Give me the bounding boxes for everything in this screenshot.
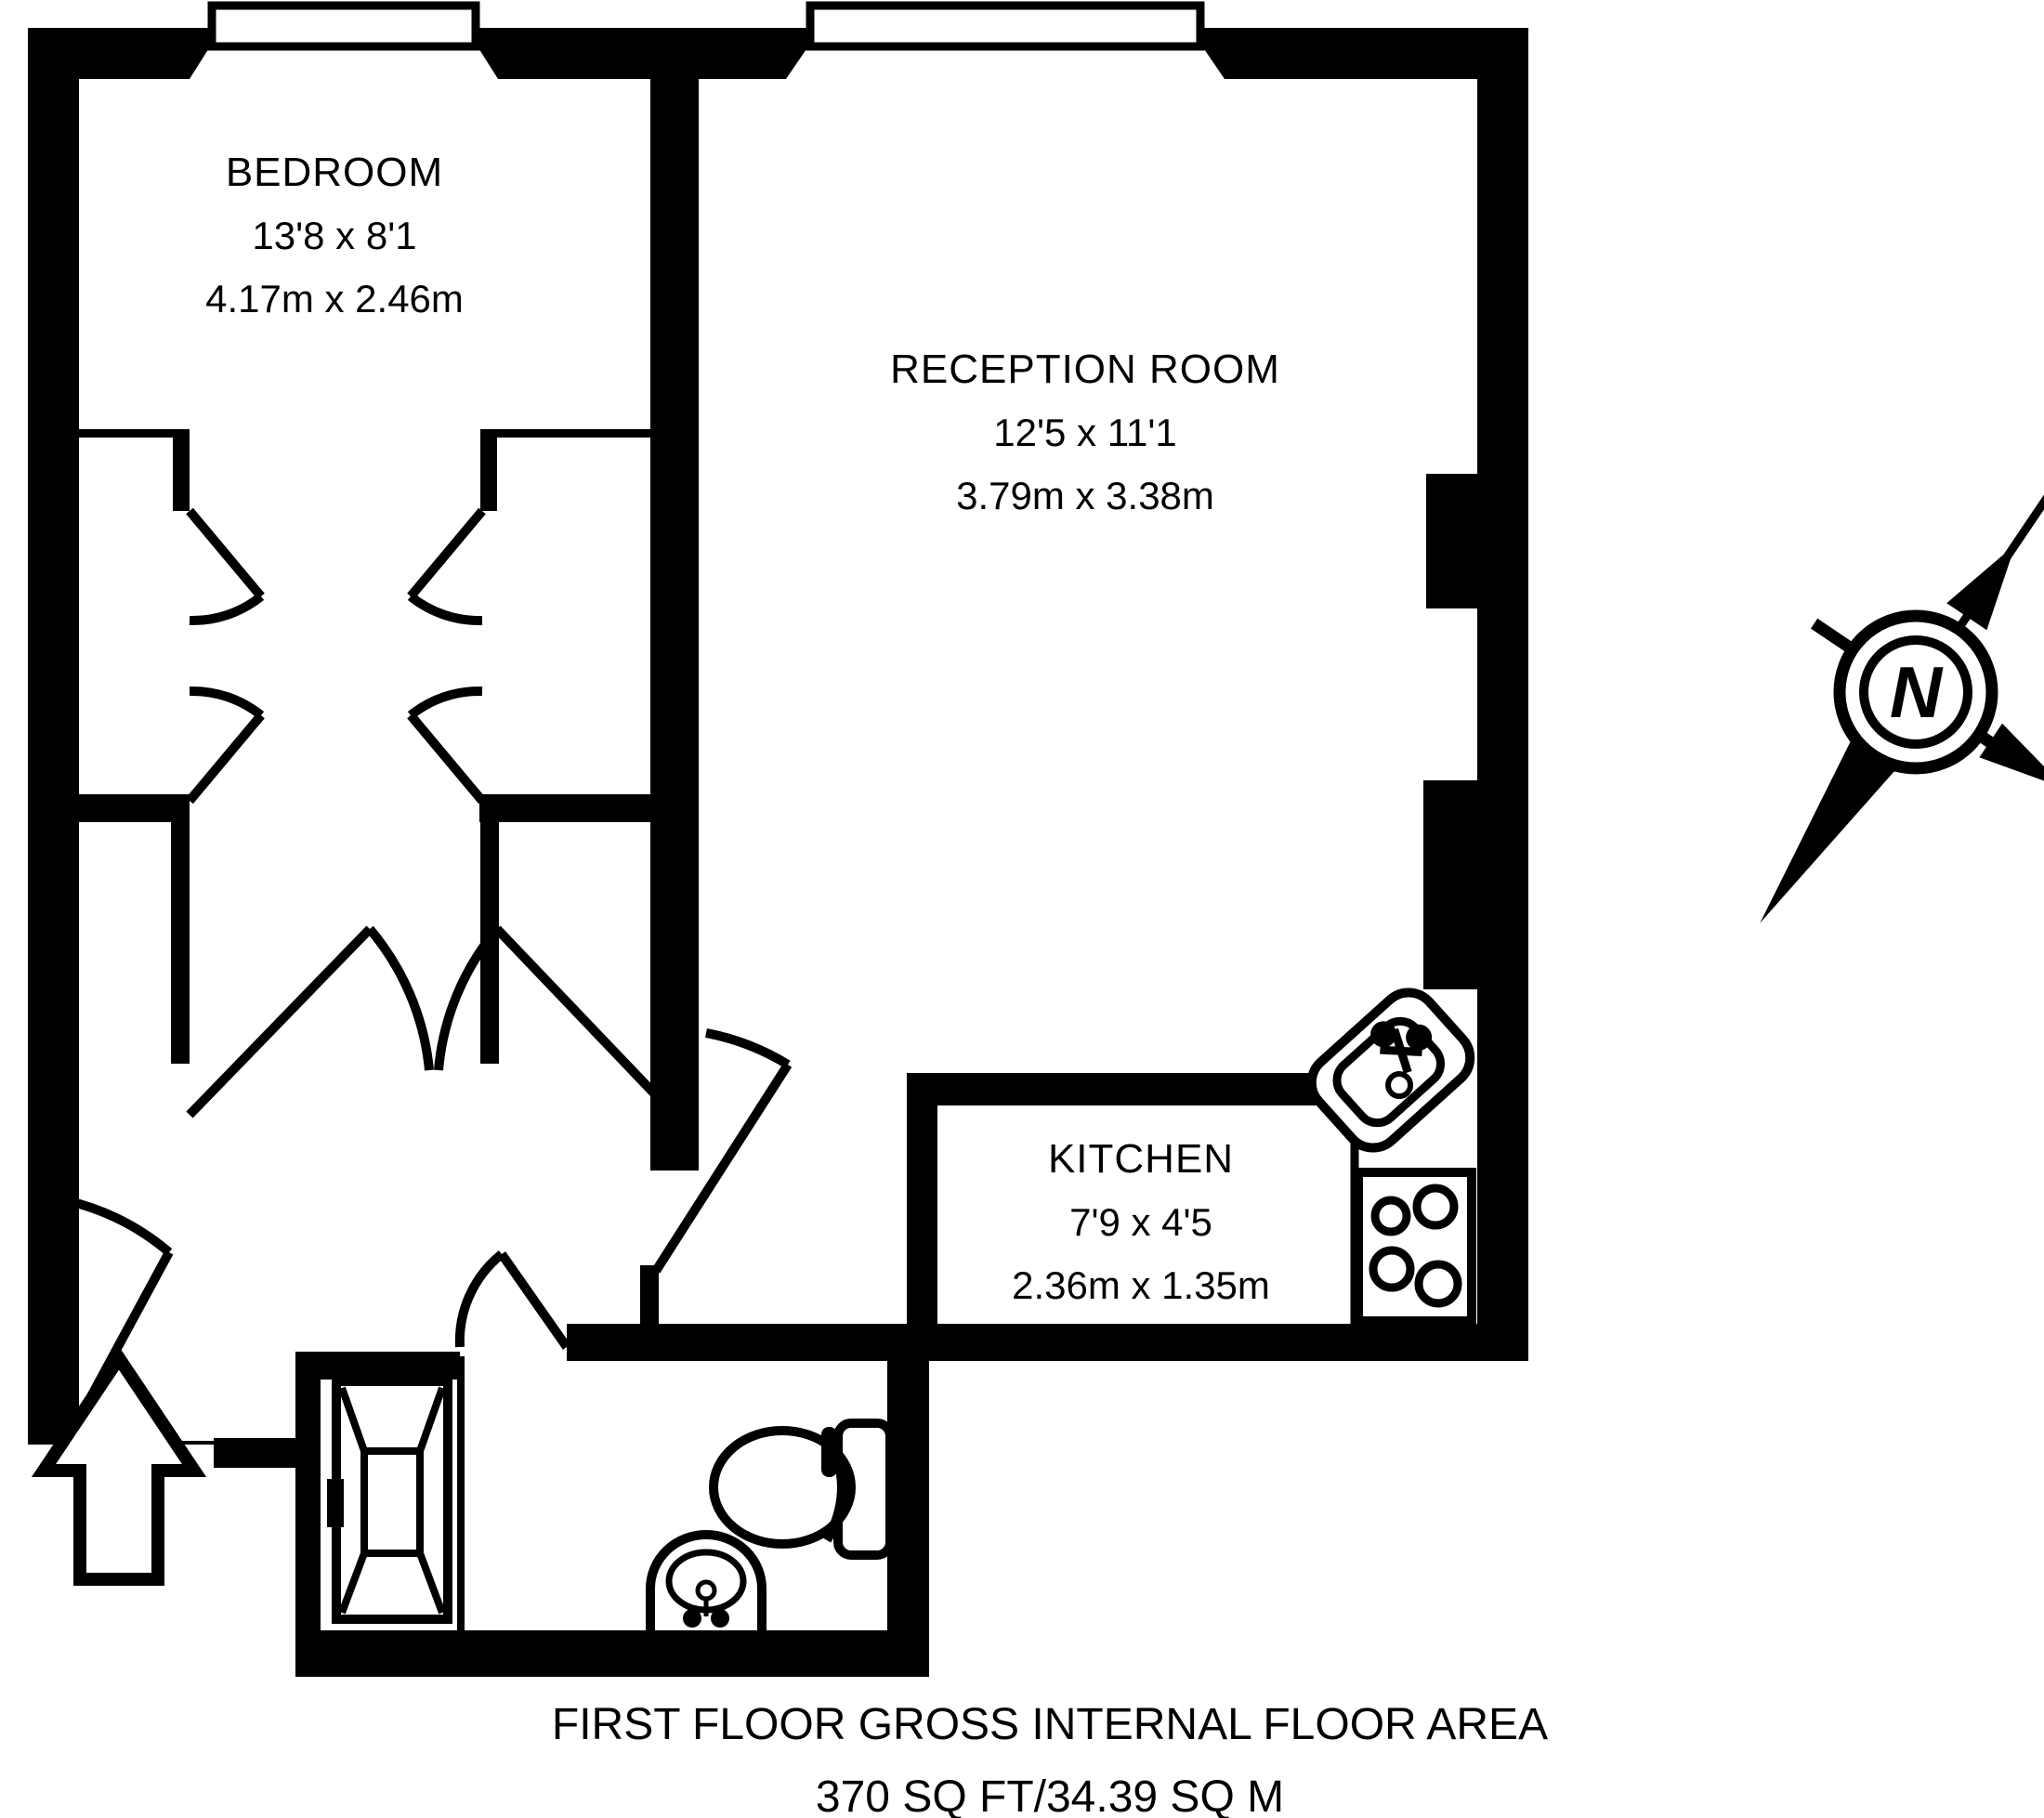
hallway-door-left-leaf: [190, 929, 429, 1115]
compass: N: [1658, 404, 2044, 1023]
wall-left: [28, 28, 79, 1445]
reception-dims-imperial: 12'5 x 11'1: [993, 411, 1176, 454]
floor-caption: FIRST FLOOR GROSS INTERNAL FLOOR AREA 37…: [552, 1700, 1548, 1818]
bedroom-window: [190, 6, 498, 79]
wall-kitchen-bottom-long: [567, 1324, 1528, 1361]
reception-label: RECEPTION ROOM 12'5 x 11'1 3.79m x 3.38m: [890, 347, 1280, 517]
hallway-door-right-leaf: [439, 929, 675, 1115]
wall-chimney-block-b: [1423, 780, 1479, 989]
bathroom-door: [460, 1254, 567, 1347]
wall-entry-threshold-stub: [214, 1438, 321, 1468]
closet-front-line-right: [496, 429, 650, 438]
wall-closet-upper-stub-right: [480, 429, 497, 511]
kitchen-name: KITCHEN: [1048, 1136, 1234, 1182]
wall-closet-upper-stub-left: [173, 429, 190, 511]
bedroom-label: BEDROOM 13'8 x 8'1 4.17m x 2.46m: [205, 150, 464, 320]
bedroom-name: BEDROOM: [226, 150, 443, 195]
kitchen-label: KITCHEN 7'9 x 4'5 2.36m x 1.35m: [1012, 1136, 1270, 1307]
wall-bathroom-bottom: [295, 1630, 929, 1677]
floorplan-page: N BEDROOM 13'8 x 8'1 4.17m x 2.46m RECEP…: [0, 0, 2044, 1818]
compass-north-point: [1946, 530, 2036, 630]
wall-kitchen-top: [907, 1073, 1356, 1105]
bedroom-dims-metric: 4.17m x 2.46m: [205, 277, 464, 320]
reception-window: [786, 6, 1225, 79]
kitchen-dims-metric: 2.36m x 1.35m: [1012, 1263, 1270, 1307]
wall-closet-stub-left: [171, 794, 190, 1064]
bathtub-icon: [327, 1381, 448, 1619]
wash-basin-icon: [650, 1535, 762, 1630]
wall-bedroom-bottom-right: [479, 794, 650, 822]
hob-icon: [1358, 1172, 1472, 1321]
kitchen-fixtures: [1300, 981, 1481, 1327]
bedroom-dims-imperial: 13'8 x 8'1: [252, 214, 416, 257]
floorplan-drawing: N BEDROOM 13'8 x 8'1 4.17m x 2.46m RECEP…: [0, 0, 2044, 1818]
wall-bathroom-left: [295, 1352, 321, 1677]
caption-line-2: 370 SQ FT/34.39 SQ M: [816, 1772, 1284, 1818]
wardrobe-bifold-left: [190, 511, 261, 801]
caption-line-1: FIRST FLOOR GROSS INTERNAL FLOOR AREA: [552, 1700, 1548, 1749]
wall-divider-bedroom-reception: [650, 79, 699, 1171]
tub-partition-line: [457, 1356, 465, 1630]
wall-kitchen-left: [907, 1073, 937, 1361]
wall-reception-door-stub: [640, 1265, 659, 1330]
wardrobe-bifold-right: [411, 511, 482, 801]
reception-name: RECEPTION ROOM: [890, 347, 1280, 392]
reception-dims-metric: 3.79m x 3.38m: [956, 474, 1214, 517]
kitchen-sink-icon: [1300, 981, 1481, 1159]
toilet-icon: [714, 1423, 890, 1555]
wall-chimney-block-a: [1426, 474, 1480, 608]
wall-right: [1477, 28, 1528, 1361]
compass-n-label: N: [1890, 651, 1944, 733]
wall-bathroom-top-left: [295, 1352, 460, 1380]
kitchen-dims-imperial: 7'9 x 4'5: [1069, 1200, 1212, 1244]
bathroom-fixtures: [327, 1381, 890, 1630]
closet-front-line-left: [79, 429, 175, 438]
